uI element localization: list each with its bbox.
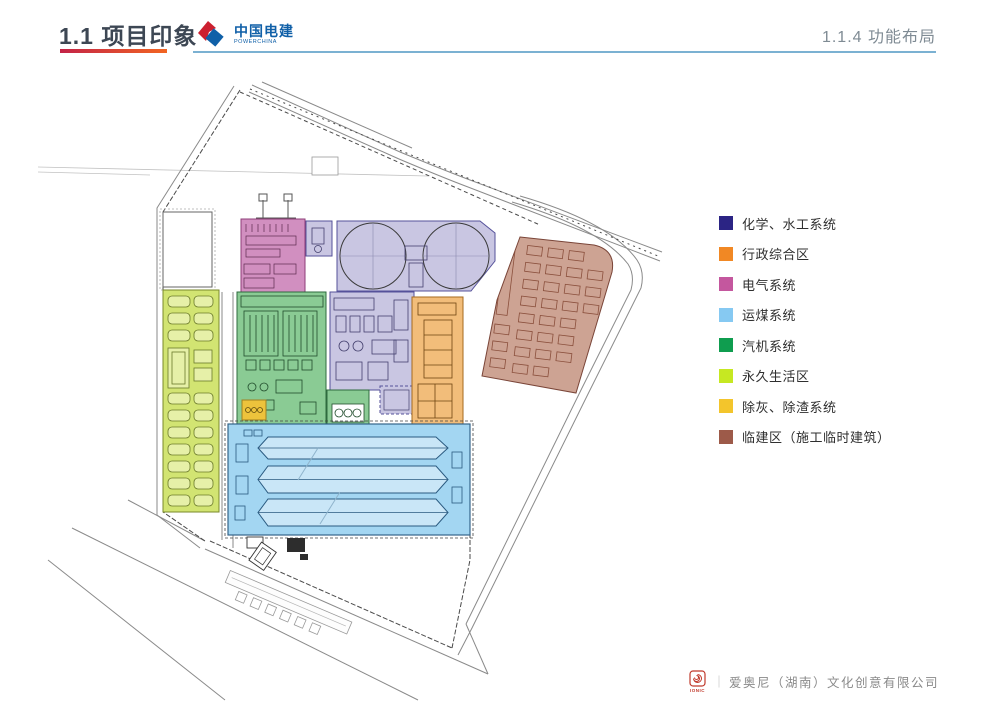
legend-label: 永久生活区: [742, 366, 810, 385]
legend: 化学、水工系统 行政综合区 电气系统 运煤系统 汽机系统 永久生活区 除灰、除渣…: [719, 216, 891, 460]
page-title: 1.1 项目印象: [59, 17, 197, 51]
zone-coal: [225, 421, 473, 538]
survey-lines: [38, 167, 428, 176]
page-subtitle: 1.1.4 功能布局: [822, 23, 936, 47]
zone-admin: [412, 297, 463, 425]
ionic-logo-text: IONIC: [690, 688, 705, 693]
footer-separator: ｜: [713, 673, 725, 690]
powerchina-logo-icon: [194, 17, 228, 53]
ionic-spiral-icon: [689, 670, 706, 687]
zone-chemical-tanks: [306, 221, 495, 291]
legend-item-coal: 运煤系统: [719, 308, 891, 322]
legend-item-temporary: 临建区（施工临时建筑）: [719, 430, 891, 444]
legend-label: 临建区（施工临时建筑）: [742, 427, 891, 446]
ionic-logo: IONIC: [689, 670, 706, 693]
legend-label: 运煤系统: [742, 305, 796, 324]
zone-living-area: [163, 290, 219, 512]
legend-swatch-admin: [719, 247, 733, 261]
legend-swatch-turbine: [719, 338, 733, 352]
brand-name-en: POWERCHINA: [234, 40, 294, 46]
white-building: [160, 209, 215, 290]
legend-swatch-chemical: [719, 216, 733, 230]
legend-label: 行政综合区: [742, 244, 810, 263]
footer: IONIC ｜ 爱奥尼（湖南）文化创意有限公司: [689, 670, 939, 693]
legend-item-chemical: 化学、水工系统: [719, 216, 891, 230]
header-divider: [193, 51, 936, 53]
legend-item-electrical: 电气系统: [719, 277, 891, 291]
legend-label: 化学、水工系统: [742, 214, 837, 233]
legend-swatch-coal: [719, 308, 733, 322]
legend-label: 除灰、除渣系统: [742, 397, 837, 416]
legend-swatch-living: [719, 369, 733, 383]
company-name: 爱奥尼（湖南）文化创意有限公司: [729, 672, 939, 691]
zone-chemical-plant: [330, 292, 414, 390]
zone-temporary: [482, 237, 613, 393]
zone-ash: [242, 400, 266, 420]
zone-electrical: [241, 219, 305, 295]
legend-label: 汽机系统: [742, 336, 796, 355]
legend-swatch-ash: [719, 399, 733, 413]
legend-item-living: 永久生活区: [719, 369, 891, 383]
zone-chemical-pond: [380, 386, 413, 414]
title-accent-bar: [60, 49, 167, 53]
coal-unloading-equipment: [247, 537, 308, 570]
zone-turbine-tanks: [327, 390, 369, 425]
chimney-symbols: [256, 194, 296, 222]
legend-item-admin: 行政综合区: [719, 247, 891, 261]
legend-swatch-temporary: [719, 430, 733, 444]
slide: 1.1 项目印象 1.1.4 功能布局 中国电建 POWERCHINA 化学、水…: [0, 0, 1000, 707]
legend-item-turbine: 汽机系统: [719, 338, 891, 352]
legend-swatch-electrical: [719, 277, 733, 291]
legend-item-ash: 除灰、除渣系统: [719, 399, 891, 413]
legend-label: 电气系统: [742, 275, 796, 294]
powerchina-logo: 中国电建 POWERCHINA: [194, 17, 294, 53]
brand-name-cn: 中国电建: [234, 24, 294, 38]
road-label-box: [312, 157, 338, 175]
jetty-conveyor: [221, 570, 352, 645]
